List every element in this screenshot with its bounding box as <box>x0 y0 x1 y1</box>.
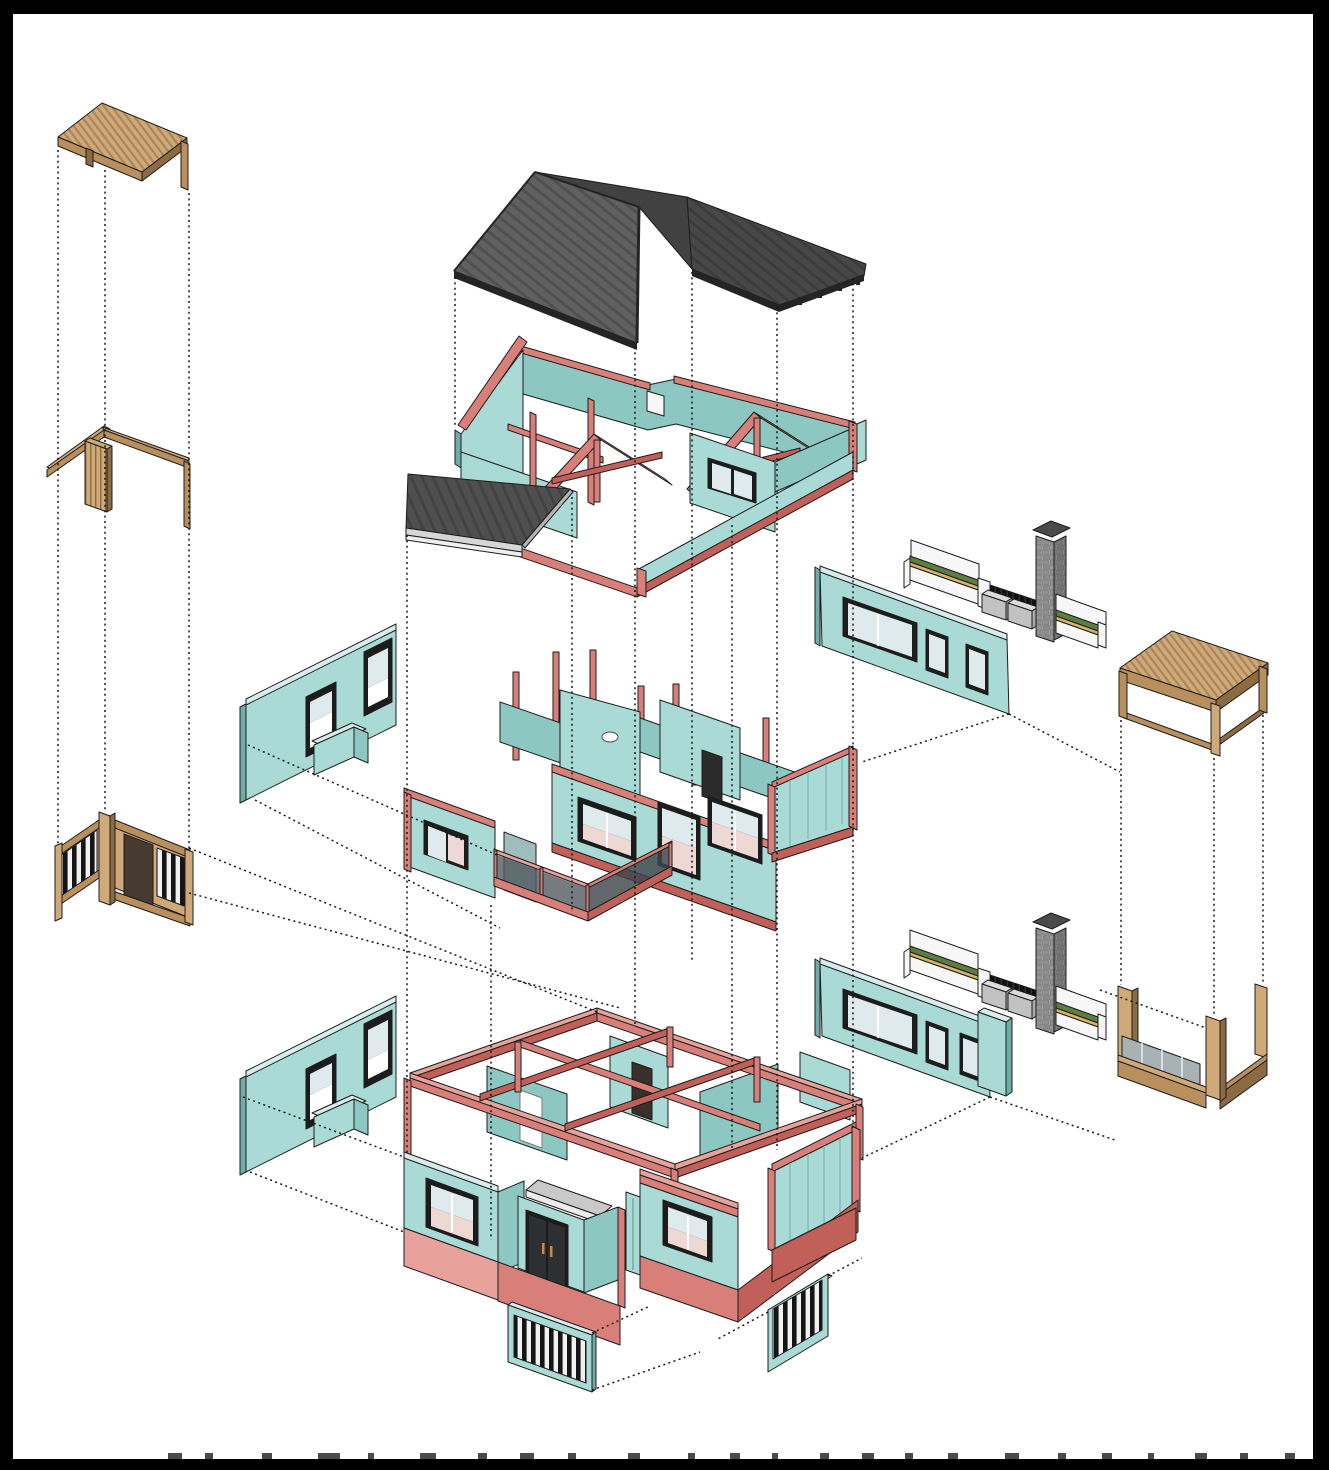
interior-door <box>702 750 722 803</box>
door-handle <box>542 1243 545 1254</box>
door-handle <box>550 1246 553 1257</box>
exploded-axonometric-diagram <box>0 0 1329 1470</box>
diagram-canvas <box>0 0 1329 1470</box>
attic-window-opening <box>647 391 664 416</box>
teal-pilaster <box>978 1008 1012 1096</box>
wc-fixture <box>602 732 618 742</box>
